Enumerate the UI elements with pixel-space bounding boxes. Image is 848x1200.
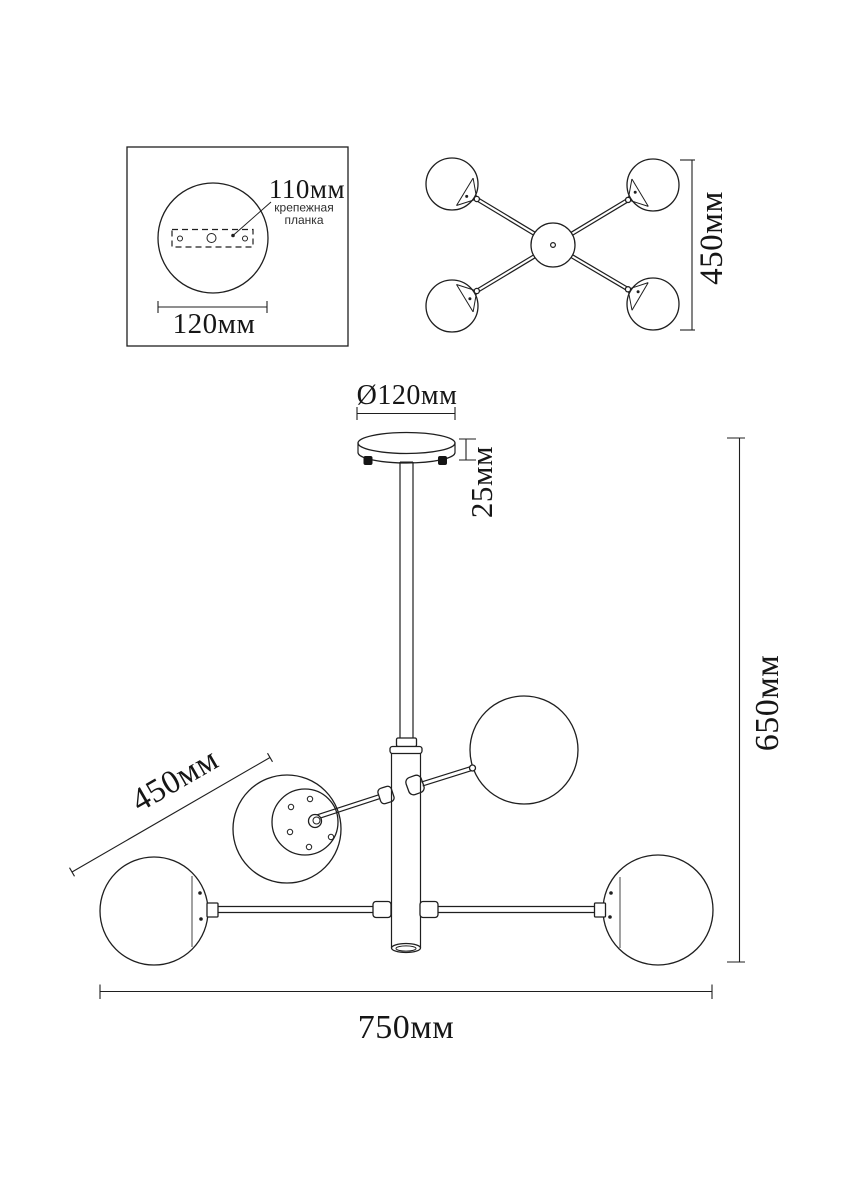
canopy-height-dimension: 25мм xyxy=(459,439,499,518)
socket-nub xyxy=(474,196,479,201)
arm-top-right xyxy=(571,199,629,236)
plate-hole-center xyxy=(207,234,216,243)
column-sleeve-rear-arm xyxy=(377,785,395,805)
rear-sphere-glass xyxy=(233,775,341,883)
mount-detail-view: 110мм крепежная планка 120мм xyxy=(127,147,348,346)
canopy-outline-circle xyxy=(158,183,268,293)
arm-bottom-left xyxy=(476,255,535,292)
socket-nub xyxy=(470,765,476,771)
column-sleeve-right-arm xyxy=(420,902,438,918)
top-view-span-dimension: 450мм xyxy=(680,160,730,330)
column-sleeve-upper-arm xyxy=(404,774,425,796)
hub-circle xyxy=(531,223,575,267)
front-view: Ø120мм 25мм xyxy=(70,380,787,1046)
sphere-top-right xyxy=(626,159,680,211)
overall-width-label: 750мм xyxy=(358,1009,455,1046)
canopy-diameter-label: Ø120мм xyxy=(357,380,458,411)
upper-right-sphere xyxy=(470,696,578,804)
overall-height-label: 650мм xyxy=(749,655,786,752)
technical-drawing: 110мм крепежная планка 120мм xyxy=(0,0,848,1200)
horizontal-arms xyxy=(217,902,595,918)
hanging-rod xyxy=(397,462,417,747)
arm-bottom-right xyxy=(571,255,629,291)
socket-nub xyxy=(626,197,631,202)
top-view-span-label: 450мм xyxy=(694,191,730,285)
column-top-cap xyxy=(390,747,422,754)
left-sphere xyxy=(100,857,218,965)
sphere-bottom-right xyxy=(625,278,679,330)
arm-top-left xyxy=(476,198,535,235)
upper-right-arm xyxy=(404,766,473,796)
leader-line xyxy=(233,202,271,236)
rear-sphere xyxy=(233,775,395,883)
plate-note-line2: планка xyxy=(285,213,324,227)
rod-collar xyxy=(397,738,417,747)
overall-width-dimension: 750мм xyxy=(100,985,712,1047)
socket-nub xyxy=(474,288,479,293)
canopy-height-label: 25мм xyxy=(464,446,499,518)
plate-hole-right xyxy=(243,236,248,241)
canopy-screw-right xyxy=(439,457,447,465)
spec-sheet-page: 110мм крепежная планка 120мм xyxy=(0,0,848,1200)
sphere-bottom-left xyxy=(426,280,479,332)
mounting-plate-dashed xyxy=(172,230,253,248)
right-sphere-fitting xyxy=(595,903,606,917)
left-sphere-fitting xyxy=(207,903,218,917)
arm-length-label: 450мм xyxy=(125,741,224,819)
canopy-top-ellipse xyxy=(358,433,455,454)
right-sphere xyxy=(595,855,714,965)
base-width-dimension: 120мм xyxy=(158,301,267,340)
leader-dot xyxy=(231,234,235,238)
plate-offset-label: 110мм xyxy=(269,174,345,204)
top-view: 450мм xyxy=(426,158,730,332)
socket-nub xyxy=(625,287,630,292)
ceiling-canopy xyxy=(358,433,455,465)
base-width-label: 120мм xyxy=(173,308,256,340)
column-sleeve-left-arm xyxy=(373,902,391,918)
canopy-screw-left xyxy=(364,457,372,465)
canopy-diameter-dimension: Ø120мм xyxy=(357,380,458,420)
sphere-top-left xyxy=(426,158,479,210)
plate-hole-left xyxy=(178,236,183,241)
overall-height-dimension: 650мм xyxy=(727,438,786,962)
